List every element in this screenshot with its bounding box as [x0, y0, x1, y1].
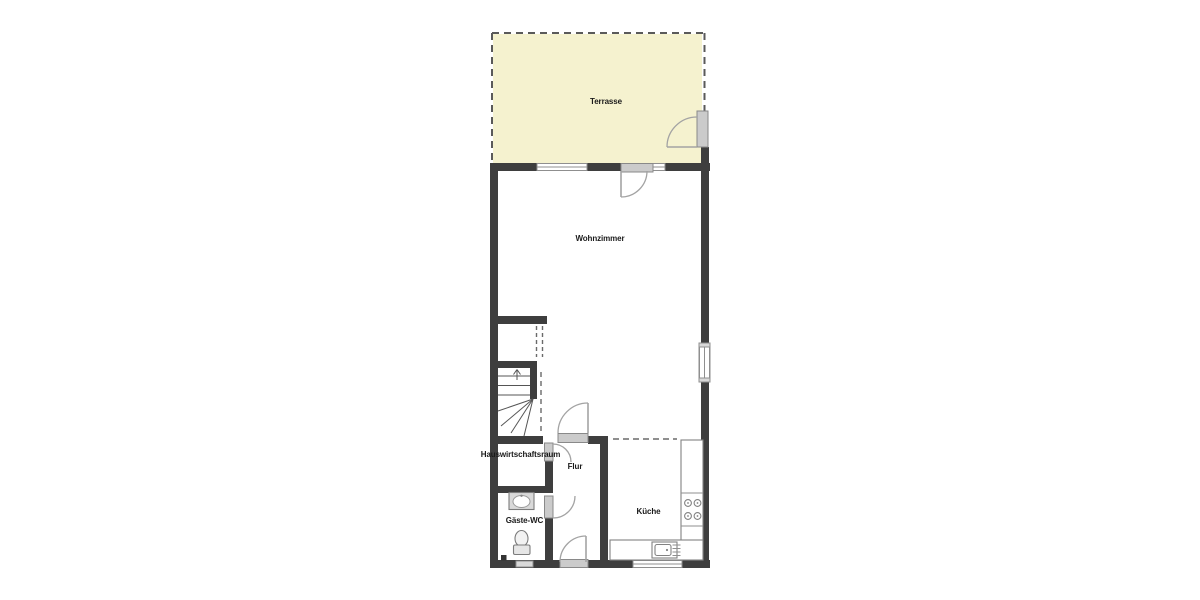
door-guest-wc: [545, 496, 576, 518]
wall-mid-seg1: [490, 436, 543, 444]
stairs-direction-arrow: [514, 370, 521, 381]
room-label-hauswirtschaftsraum: Hauswirtschaftsraum: [440, 450, 601, 460]
room-label-gaeste-wc: Gäste-WC: [484, 516, 565, 526]
wall-stairs-top: [490, 361, 537, 368]
window-terrace-left: [537, 164, 587, 171]
room-label-wohnzimmer: Wohnzimmer: [550, 234, 650, 244]
room-label-flur: Flur: [555, 462, 595, 472]
wall-stub-void: [490, 316, 547, 324]
washbasin-icon: [509, 493, 534, 510]
wall-hwr-flur: [545, 458, 553, 493]
room-label-kueche: Küche: [608, 507, 689, 517]
wall-top-seg2: [587, 163, 621, 171]
wall-bottom-seg2: [588, 560, 633, 568]
door-entry: [560, 536, 588, 568]
window-wc-bottom: [516, 561, 533, 567]
floor-plan-drawing: [0, 0, 1200, 600]
window-kitchen-bottom: [633, 561, 682, 568]
toilet-icon: [514, 531, 531, 555]
pipe-column-marker: [501, 555, 507, 561]
wall-kueche-flur: [600, 444, 608, 564]
wall-top-seg1: [490, 163, 537, 171]
staircase-up-icon: [498, 370, 533, 437]
wall-stairs-stringer: [530, 361, 537, 399]
wall-mid-seg2: [588, 436, 608, 444]
open-boundaries: [537, 326, 678, 439]
wall-right-seg1: [701, 147, 709, 343]
window-terrace-small: [653, 164, 665, 171]
window-right-wall: [699, 343, 710, 382]
floor-plan: Terrasse Wohnzimmer Hauswirtschaftsraum …: [0, 0, 1200, 600]
wall-bottom-seg3: [682, 560, 710, 568]
door-terrace-living: [621, 164, 653, 198]
room-label-terrasse: Terrasse: [566, 97, 646, 107]
door-living-hall: [558, 403, 588, 443]
